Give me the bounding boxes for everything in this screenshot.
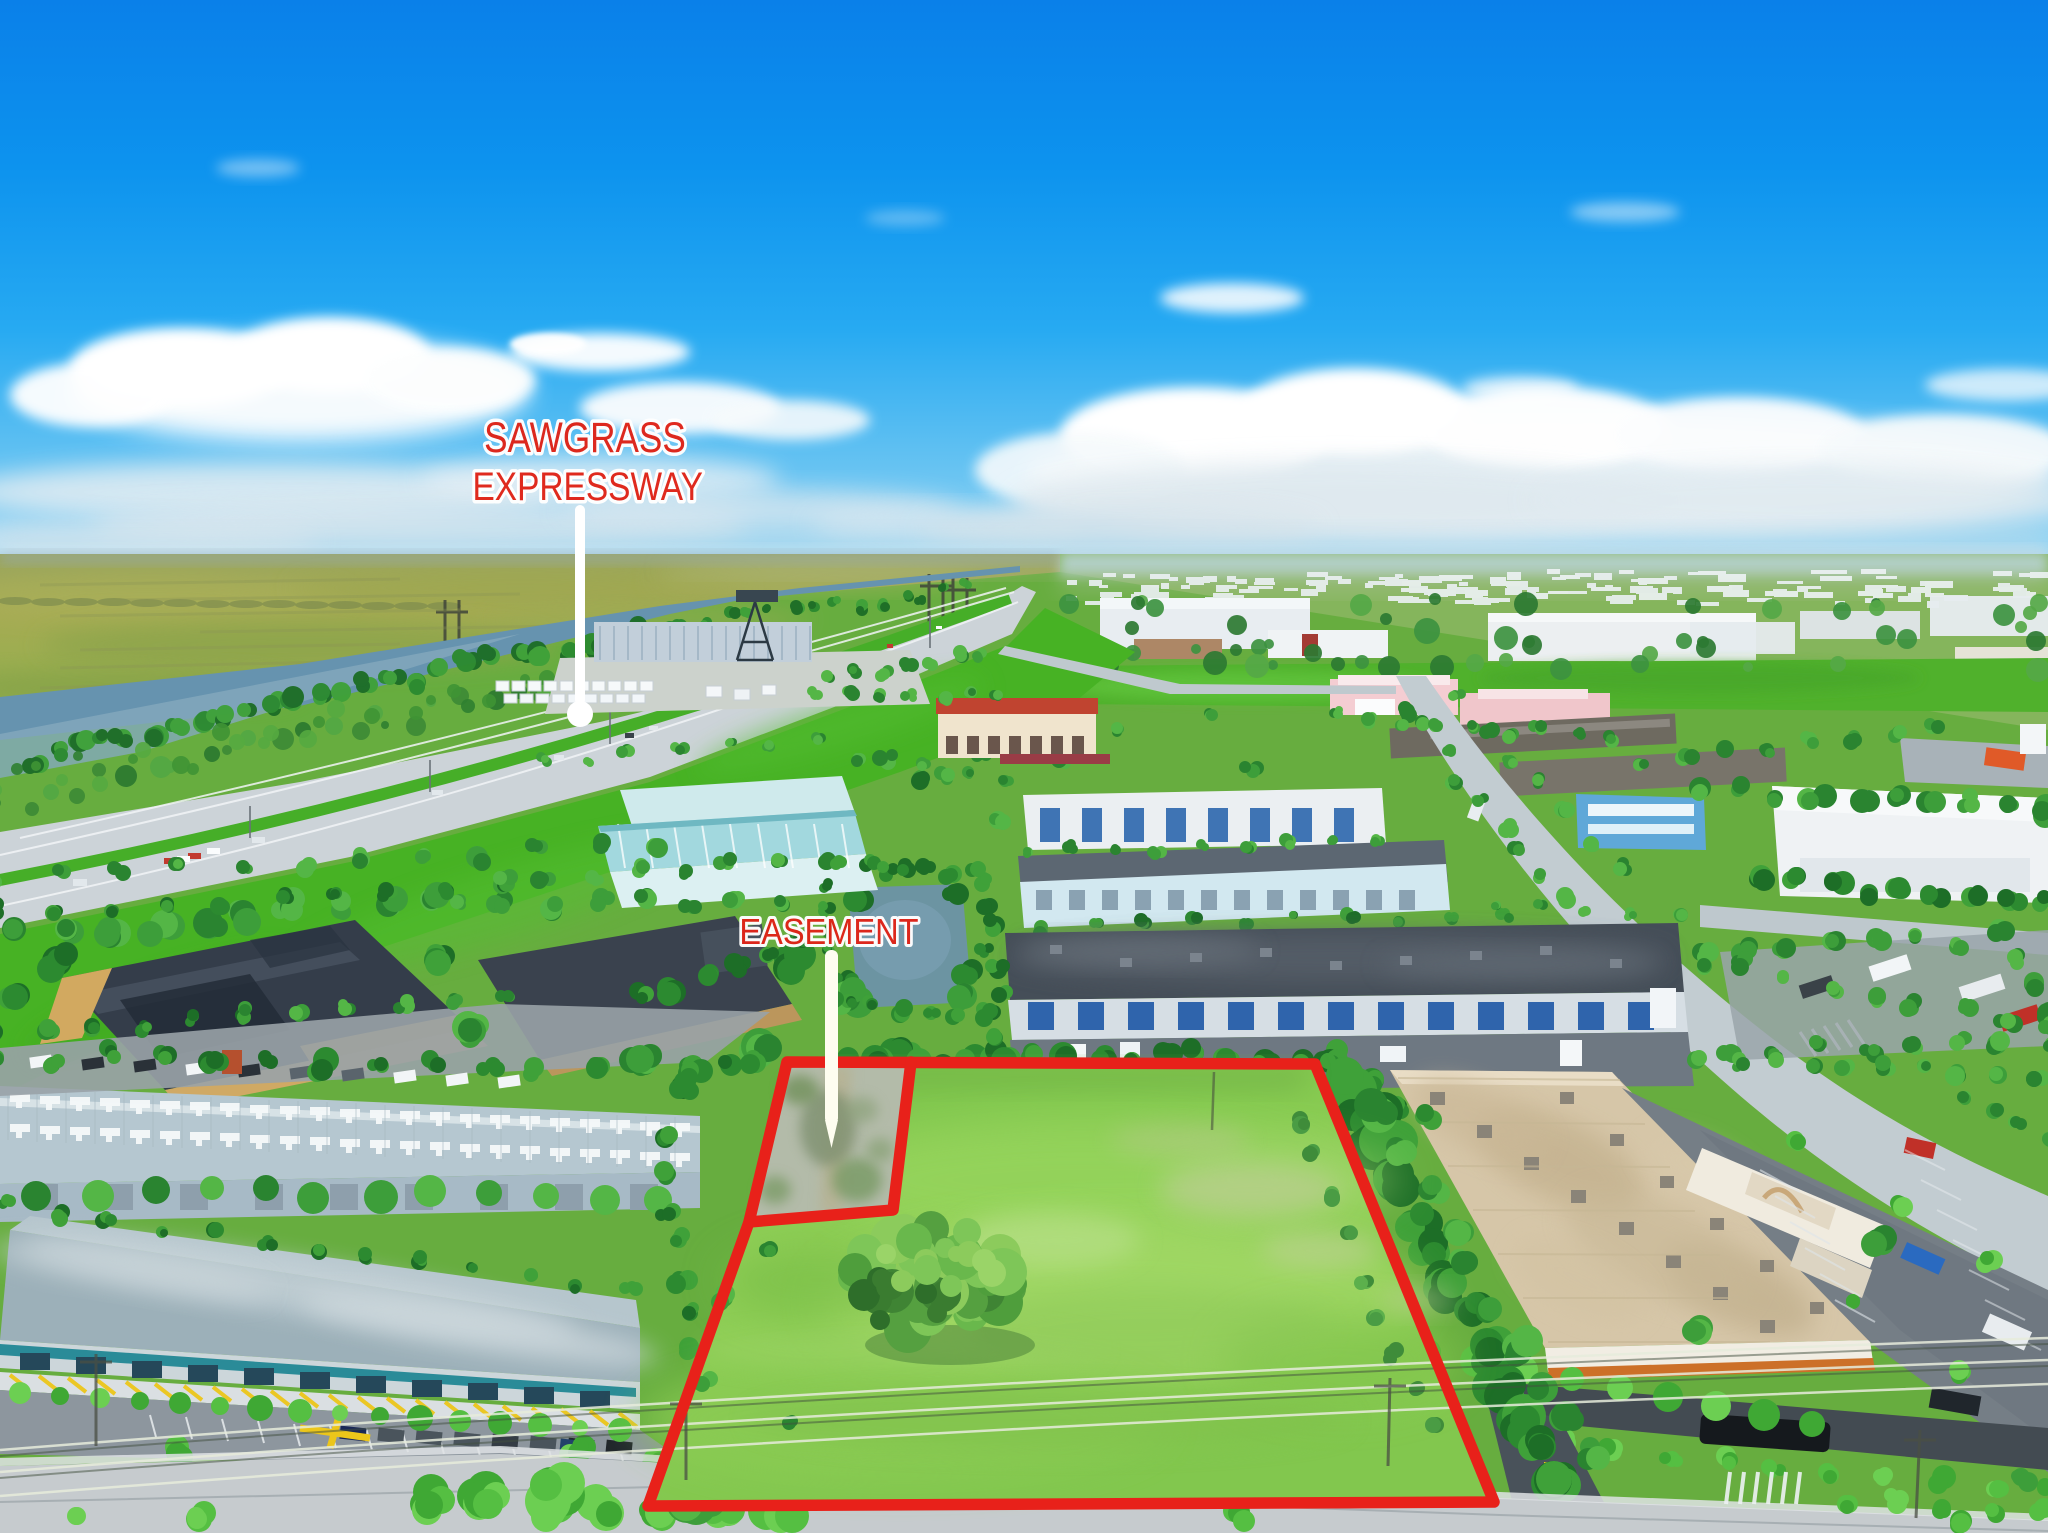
svg-text:EASEMENT: EASEMENT <box>739 913 918 953</box>
svg-text:EXPRESSWAY: EXPRESSWAY <box>473 464 703 508</box>
svg-text:SAWGRASS: SAWGRASS <box>484 414 686 462</box>
